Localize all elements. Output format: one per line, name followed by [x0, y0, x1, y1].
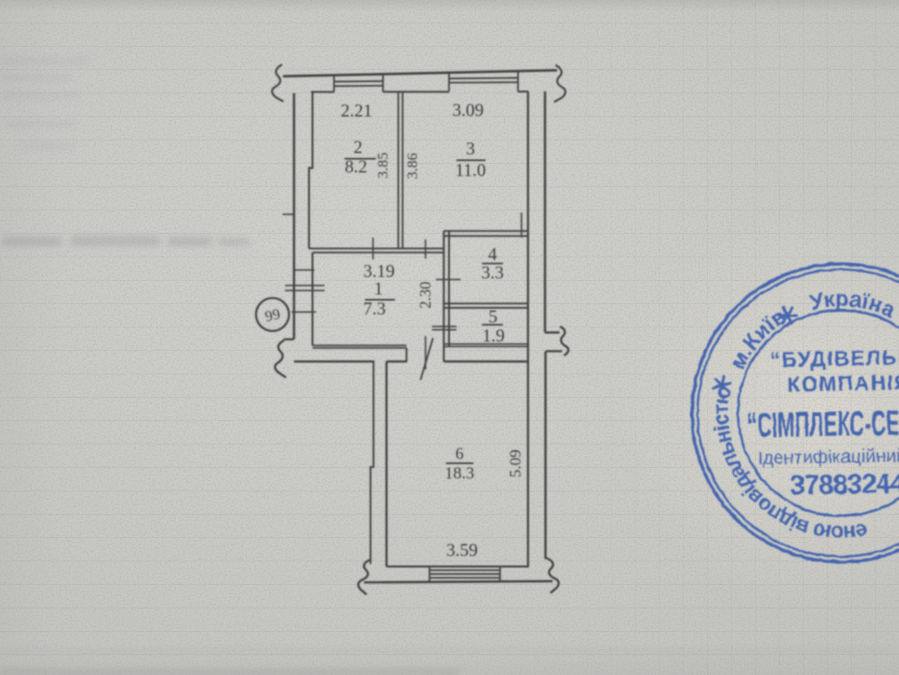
- svg-text:3.86: 3.86: [405, 152, 421, 179]
- svg-text:6: 6: [455, 444, 463, 463]
- svg-text:2.21: 2.21: [341, 101, 373, 121]
- svg-text:1.9: 1.9: [482, 326, 505, 346]
- svg-text:КОМПАНІЯ: КОМПАНІЯ: [787, 371, 899, 396]
- svg-text:1: 1: [374, 279, 383, 299]
- svg-text:3.59: 3.59: [446, 540, 478, 560]
- svg-text:11.0: 11.0: [455, 160, 486, 180]
- svg-text:“СІМПЛЕКС-СЕРВІС”: “СІМПЛЕКС-СЕРВІС”: [747, 403, 899, 446]
- svg-text:2.30: 2.30: [418, 281, 435, 308]
- svg-text:7.3: 7.3: [363, 299, 386, 319]
- svg-text:8.2: 8.2: [345, 157, 368, 177]
- svg-text:Ідентифікаційний код: Ідентифікаційний код: [757, 444, 899, 468]
- svg-text:37883244: 37883244: [790, 468, 899, 501]
- svg-text:3.3: 3.3: [481, 263, 504, 283]
- svg-text:5.09: 5.09: [508, 450, 525, 478]
- svg-text:3.09: 3.09: [452, 100, 484, 120]
- svg-text:4: 4: [488, 244, 497, 264]
- svg-text:2: 2: [354, 137, 363, 157]
- svg-text:3.85: 3.85: [375, 152, 391, 178]
- svg-text:18.3: 18.3: [445, 464, 475, 483]
- svg-text:“БУДІВЕЛЬНА: “БУДІВЕЛЬНА: [770, 346, 899, 372]
- svg-text:3: 3: [466, 139, 475, 159]
- svg-text:5: 5: [489, 307, 498, 327]
